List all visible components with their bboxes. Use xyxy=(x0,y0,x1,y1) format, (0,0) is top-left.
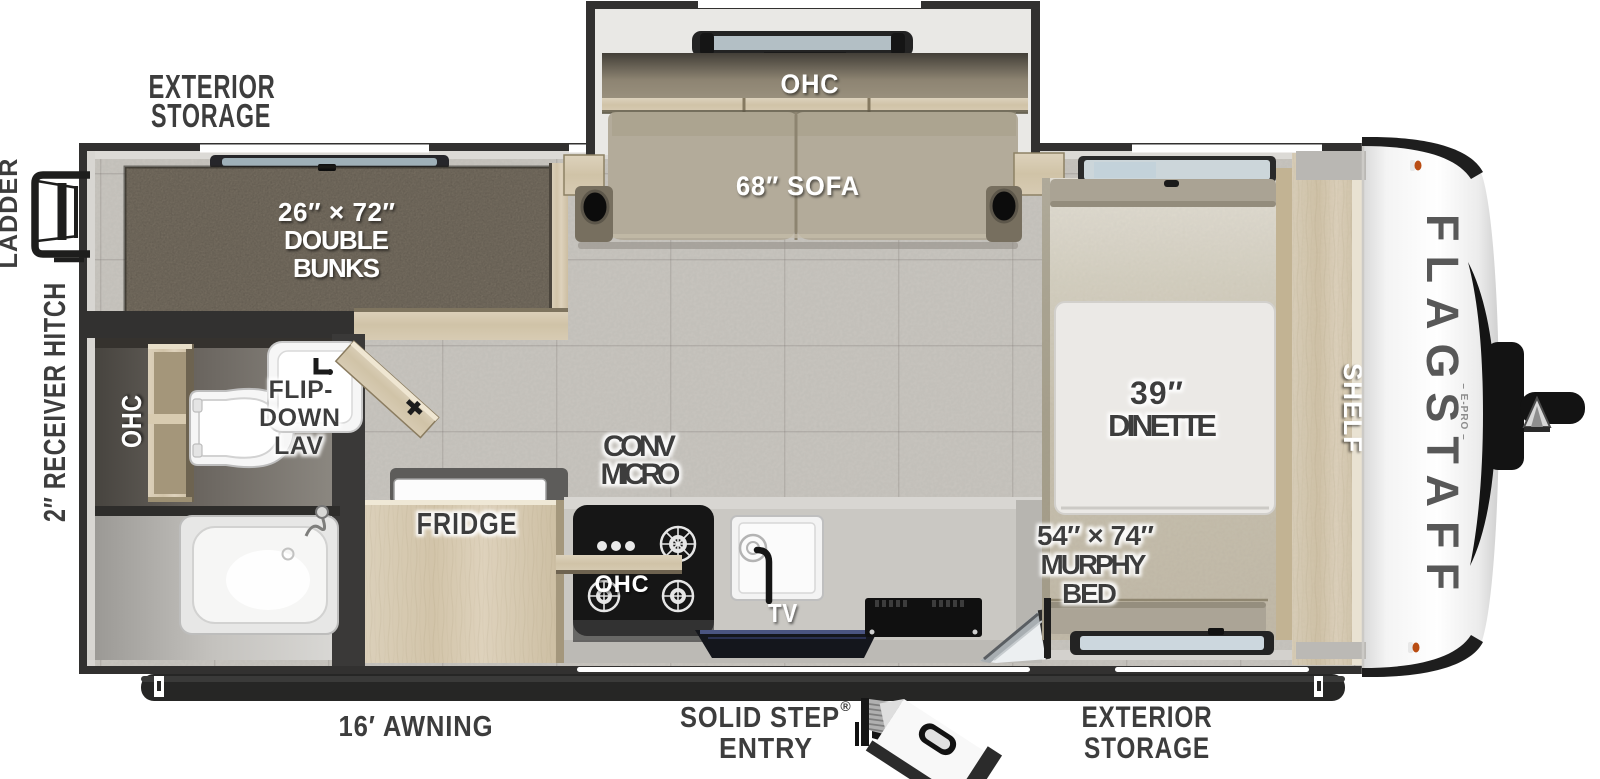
svg-text:LAV: LAV xyxy=(274,432,324,460)
svg-text:EXTERIOR: EXTERIOR xyxy=(1082,701,1213,734)
svg-text:16′ AWNING: 16′ AWNING xyxy=(339,711,494,743)
svg-text:DINETTE: DINETTE xyxy=(1108,408,1218,443)
svg-text:2″ RECEIVER HITCH: 2″ RECEIVER HITCH xyxy=(37,282,72,522)
svg-text:54″ × 74″: 54″ × 74″ xyxy=(1037,520,1155,551)
svg-text:OHC: OHC xyxy=(595,571,650,598)
svg-text:39″: 39″ xyxy=(1130,375,1184,411)
svg-text:FLIP-: FLIP- xyxy=(269,376,334,404)
svg-text:MURPHY: MURPHY xyxy=(1041,549,1148,580)
svg-text:MICRO: MICRO xyxy=(601,458,682,491)
svg-text:ENTRY: ENTRY xyxy=(719,733,813,765)
svg-text:68″ SOFA: 68″ SOFA xyxy=(736,171,860,201)
svg-text:TV: TV xyxy=(768,598,798,628)
svg-text:26″ × 72″: 26″ × 72″ xyxy=(278,197,396,227)
svg-text:SOLID STEP: SOLID STEP xyxy=(680,702,840,734)
svg-text:BED: BED xyxy=(1062,578,1118,609)
svg-text:®: ® xyxy=(840,698,851,714)
svg-text:OHC: OHC xyxy=(116,394,147,448)
svg-text:STORAGE: STORAGE xyxy=(1084,732,1210,765)
svg-text:FRIDGE: FRIDGE xyxy=(417,506,518,541)
svg-text:DOWN: DOWN xyxy=(259,404,341,432)
svg-text:– E-PRO –: – E-PRO – xyxy=(1458,383,1469,440)
svg-text:OHC: OHC xyxy=(781,69,840,99)
svg-text:BUNKS: BUNKS xyxy=(293,253,381,283)
svg-text:STORAGE: STORAGE xyxy=(151,97,271,134)
svg-text:DOUBLE: DOUBLE xyxy=(284,225,390,255)
svg-text:LADDER: LADDER xyxy=(0,158,23,269)
